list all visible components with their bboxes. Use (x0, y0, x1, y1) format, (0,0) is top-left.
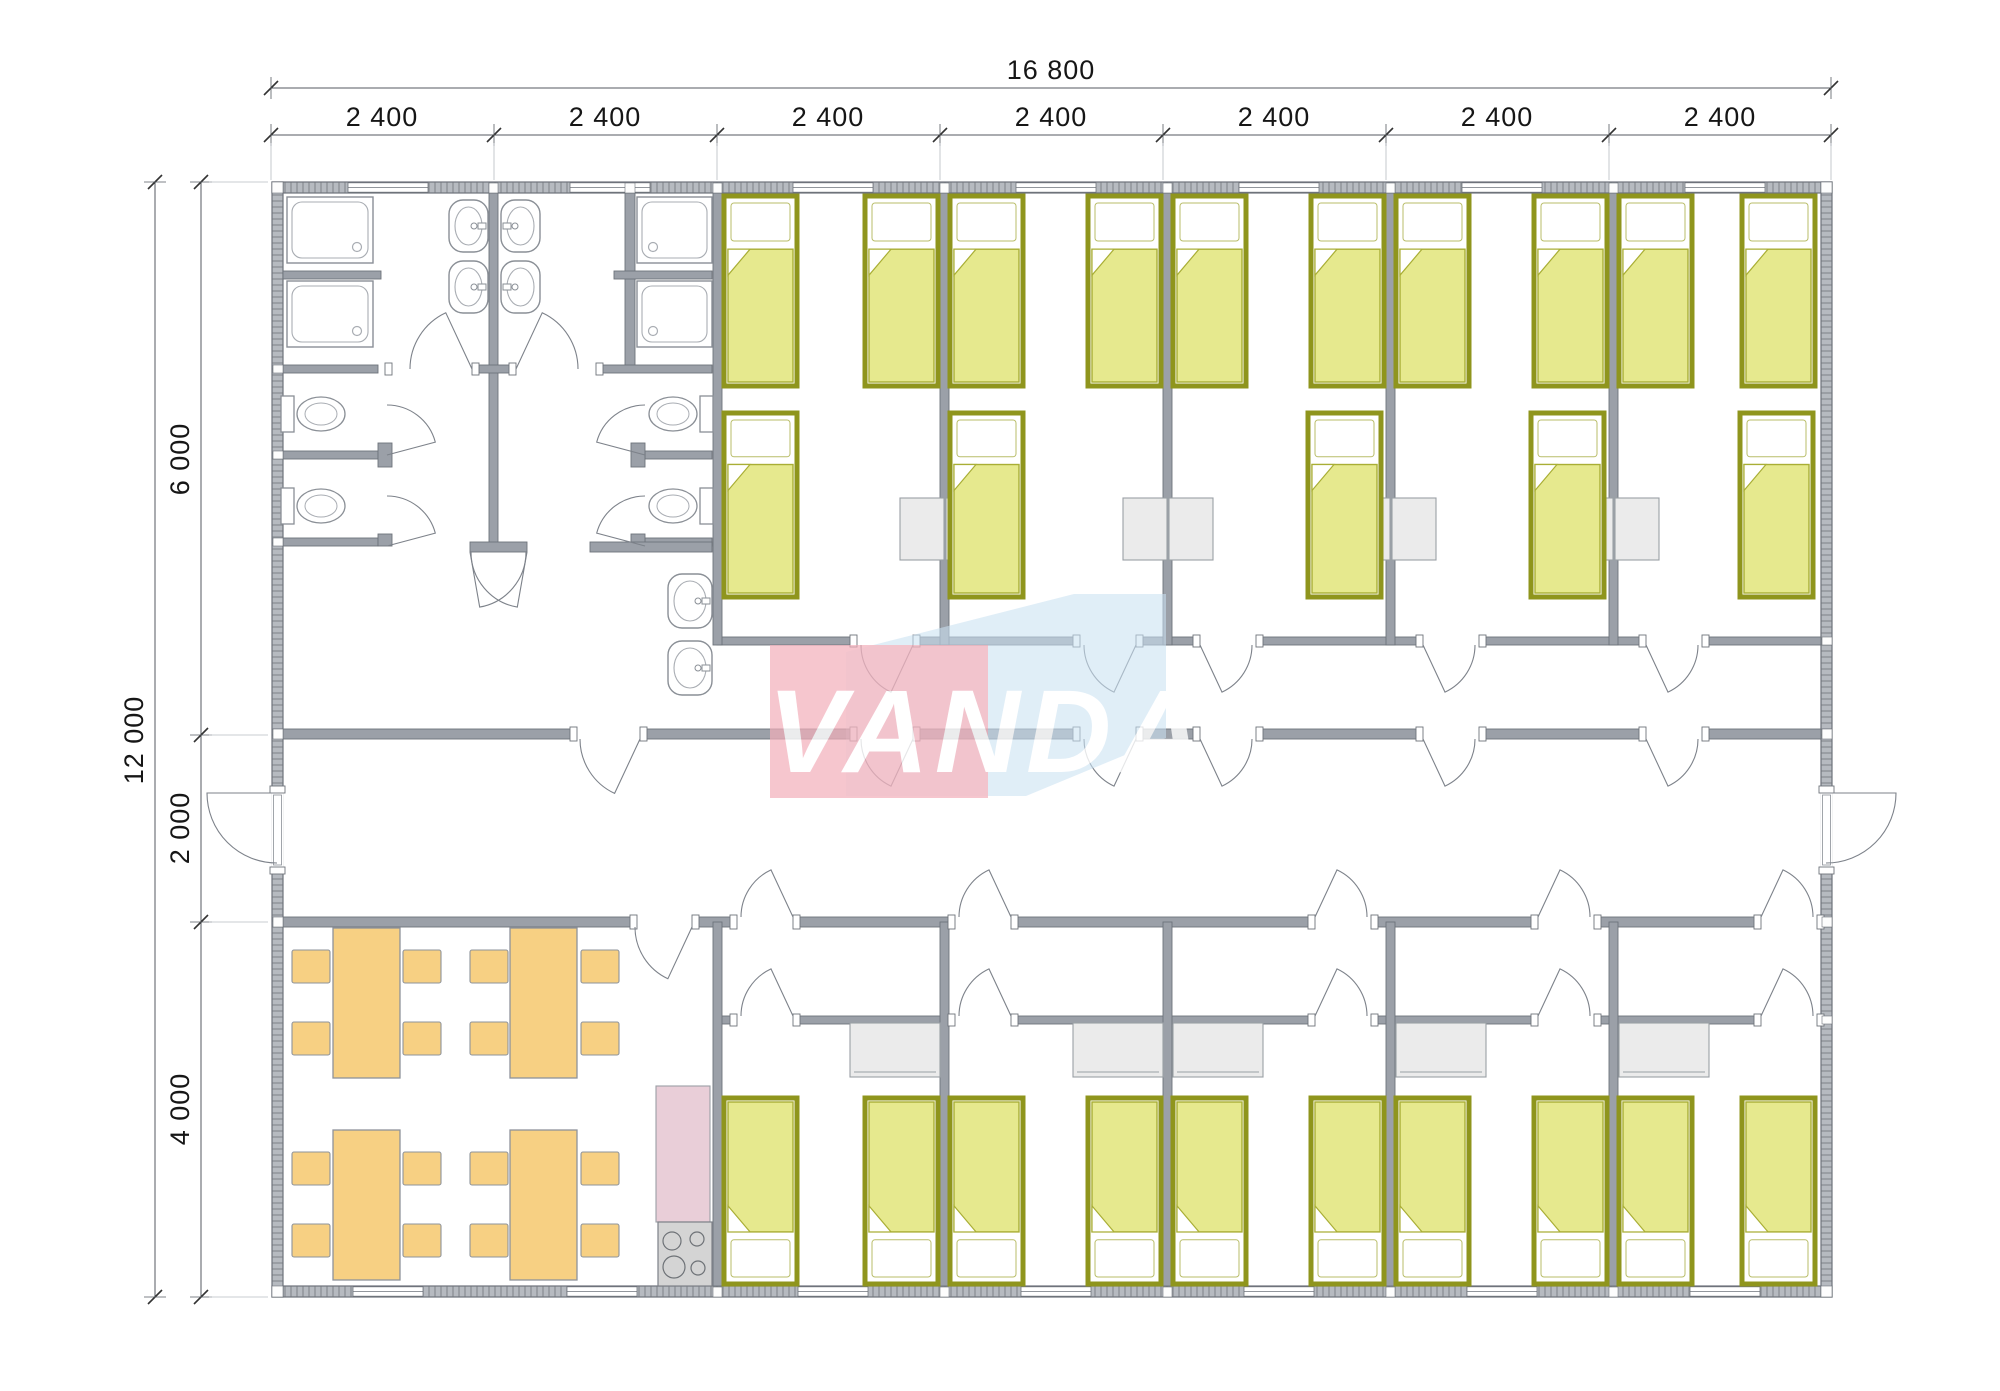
bed-blanket (1623, 249, 1688, 382)
wall-joint-cap (1386, 1287, 1395, 1297)
nightstand (900, 498, 944, 560)
door-swing (207, 793, 277, 863)
door-opening (737, 916, 793, 927)
opening-cap (1819, 786, 1834, 793)
sink-tap-icon (702, 598, 710, 604)
dining-chair (403, 1022, 441, 1055)
toilet-tank (700, 396, 713, 432)
interior-wall (596, 365, 712, 373)
interior-wall (283, 271, 381, 279)
opening-cap (1416, 727, 1423, 741)
exterior-door-leaf (1823, 795, 1831, 865)
wardrobe (1173, 1023, 1263, 1077)
wardrobe (1073, 1023, 1163, 1077)
opening-cap (1371, 1014, 1378, 1026)
opening-cap (1308, 1014, 1315, 1026)
bed-blanket (1744, 465, 1809, 593)
wall-joint-cap (489, 183, 498, 193)
nightstand (1392, 498, 1436, 560)
bed-blanket (1400, 1102, 1465, 1232)
door-opening (1761, 1015, 1817, 1024)
opening-cap (1702, 727, 1709, 741)
toilet-tank (700, 488, 713, 524)
dining-chair (403, 1224, 441, 1257)
bed-blanket (1315, 249, 1380, 382)
opening-cap (1702, 635, 1709, 647)
door-swing (516, 313, 578, 369)
opening-cap (793, 1014, 800, 1026)
sink-tap-icon (702, 665, 710, 671)
floor-plan: VANDA 16 8002 4002 4002 4002 4002 4002 4… (0, 0, 2000, 1391)
opening-cap (1531, 1014, 1538, 1026)
bed-pillow (957, 1240, 1016, 1277)
bed-blanket (954, 249, 1019, 382)
opening-cap (948, 915, 955, 929)
wall-joint-cap (272, 182, 283, 193)
interior-wall (713, 193, 722, 645)
bed-blanket (1177, 249, 1242, 382)
bed-blanket (1092, 1102, 1157, 1232)
dimension-label: 2 400 (1238, 102, 1311, 132)
wall-joint-cap (1386, 183, 1395, 193)
opening-cap (1479, 727, 1486, 741)
wall-joint-cap (273, 729, 283, 739)
bed-blanket (869, 249, 934, 382)
bed-pillow (957, 420, 1016, 457)
opening-cap (1594, 915, 1601, 929)
bed-pillow (1403, 203, 1462, 241)
wall-joint-cap (1822, 637, 1832, 645)
opening-cap (1256, 727, 1263, 741)
sink-tap-icon (478, 284, 486, 290)
door-swing (387, 496, 435, 546)
door-swing (1538, 870, 1590, 917)
sink-tap-icon (478, 223, 486, 229)
door-opening (1646, 728, 1702, 739)
opening-cap (640, 727, 647, 741)
bed-blanket (1177, 1102, 1242, 1232)
bed-blanket (869, 1102, 934, 1232)
opening-cap (1308, 915, 1315, 929)
shower-tray (637, 281, 712, 347)
kitchen-counter (656, 1086, 710, 1222)
dimension-label: 2 400 (346, 102, 419, 132)
bed-pillow (1538, 420, 1597, 457)
sink-tap-icon (503, 223, 511, 229)
opening-cap (730, 1014, 737, 1026)
dining-table (510, 928, 577, 1078)
bed-pillow (872, 203, 931, 241)
opening-cap (1639, 635, 1646, 647)
wall-joint-cap (940, 183, 949, 193)
bed-pillow (872, 1240, 931, 1277)
bed-blanket (1538, 1102, 1603, 1232)
opening-cap (1416, 635, 1423, 647)
dining-chair (292, 1152, 330, 1185)
interior-wall (283, 365, 378, 373)
door-opening (1423, 636, 1479, 645)
door-swing (1538, 969, 1590, 1016)
opening-cap (1193, 635, 1200, 647)
nightstand (1615, 498, 1659, 560)
bed-blanket (1315, 1102, 1380, 1232)
door-opening (1315, 916, 1371, 927)
opening-cap (270, 786, 285, 793)
toilet-tank (281, 396, 294, 432)
opening-cap (1754, 1014, 1761, 1026)
wardrobe (850, 1023, 940, 1077)
door-swing (1423, 739, 1475, 786)
wall-joint-cap (713, 183, 722, 193)
bed-pillow (1626, 203, 1685, 241)
dining-chair (581, 1152, 619, 1185)
wall-joint-cap (713, 1287, 722, 1297)
bed-pillow (1095, 1240, 1154, 1277)
door-swing (1761, 969, 1813, 1016)
dimension-label: 2 400 (1015, 102, 1088, 132)
door-swing (741, 969, 793, 1016)
dining-chair (403, 1152, 441, 1185)
opening-cap (1011, 1014, 1018, 1026)
door-opening (1200, 636, 1256, 645)
bed-blanket (1538, 249, 1603, 382)
wardrobe (1396, 1023, 1486, 1077)
interior-wall (614, 271, 712, 279)
door-swing (1826, 793, 1896, 863)
wall-joint-cap (273, 365, 283, 373)
opening-cap (1256, 635, 1263, 647)
door-opening (577, 728, 640, 739)
dimension-label: 2 400 (569, 102, 642, 132)
opening-cap (385, 363, 392, 375)
exterior-wall (1821, 182, 1832, 1297)
dining-chair (403, 950, 441, 983)
door-swing (410, 313, 472, 369)
wall-joint-cap (625, 183, 635, 193)
dining-chair (581, 950, 619, 983)
opening-cap (1594, 1014, 1601, 1026)
opening-cap (1011, 915, 1018, 929)
wall-joint-cap (273, 538, 283, 546)
opening-cap (730, 915, 737, 929)
door-opening (1538, 1015, 1594, 1024)
bed-blanket (1312, 465, 1377, 593)
interior-wall (378, 534, 392, 546)
floor-plan-page: VANDA 16 8002 4002 4002 4002 4002 4002 4… (0, 0, 2000, 1391)
wall-joint-cap (1821, 1286, 1832, 1297)
door-opening (1761, 916, 1817, 927)
opening-cap (1754, 915, 1761, 929)
dining-chair (470, 1224, 508, 1257)
bed-blanket (954, 1102, 1019, 1232)
bed-blanket (728, 465, 793, 593)
opening-cap (1819, 867, 1834, 874)
door-swing (580, 739, 640, 793)
opening-cap (1531, 915, 1538, 929)
bed-pillow (1318, 203, 1377, 241)
opening-cap (630, 915, 637, 929)
bed-pillow (1749, 203, 1808, 241)
dimension-label: 2 400 (1684, 102, 1757, 132)
bed-pillow (1541, 203, 1600, 241)
door-opening (1315, 1015, 1371, 1024)
nightstand (1169, 498, 1213, 560)
wall-joint-cap (940, 1287, 949, 1297)
door-swing (741, 870, 793, 917)
door-swing (1315, 969, 1367, 1016)
dining-chair (470, 1152, 508, 1185)
opening-cap (1639, 727, 1646, 741)
bed-pillow (1747, 420, 1806, 457)
toilet-bowl (649, 397, 697, 431)
door-swing (635, 927, 692, 979)
bed-blanket (1746, 1102, 1811, 1232)
opening-cap (472, 363, 479, 375)
wall-joint-cap (1822, 729, 1832, 739)
interior-wall (378, 443, 392, 467)
bed-pillow (1318, 1240, 1377, 1277)
bed-pillow (1749, 1240, 1808, 1277)
dimension-label: 2 400 (792, 102, 865, 132)
dining-chair (470, 1022, 508, 1055)
bed-pillow (731, 420, 790, 457)
interior-wall (590, 542, 712, 552)
door-opening (516, 364, 596, 373)
dimension-label: 2 400 (1461, 102, 1534, 132)
interior-wall (283, 538, 378, 546)
toilet-bowl (297, 397, 345, 431)
bed-blanket (1623, 1102, 1688, 1232)
wall-joint-cap (1609, 1287, 1618, 1297)
dimension-label: 12 000 (119, 696, 149, 785)
door-swing (1761, 870, 1813, 917)
dining-chair (292, 950, 330, 983)
bed-pillow (731, 1240, 790, 1277)
door-opening (1538, 916, 1594, 927)
toilet-bowl (297, 489, 345, 523)
dining-table (510, 1130, 577, 1280)
shower-tray (637, 197, 712, 263)
opening-cap (948, 1014, 955, 1026)
opening-cap (793, 915, 800, 929)
wall-joint-cap (1163, 183, 1172, 193)
wall-joint-cap (272, 1286, 283, 1297)
bed-blanket (1535, 465, 1600, 593)
wall-joint-cap (273, 451, 283, 459)
opening-cap (692, 915, 699, 929)
stove (658, 1222, 712, 1286)
bed-blanket (728, 249, 793, 382)
dining-chair (470, 950, 508, 983)
bed-pillow (1626, 1240, 1685, 1277)
door-opening (637, 916, 692, 927)
interior-wall (625, 193, 635, 369)
bed-blanket (954, 465, 1019, 593)
bed-pillow (1315, 420, 1374, 457)
dimension-label: 2 000 (165, 792, 195, 865)
interior-wall (713, 922, 722, 1286)
dimension-label: 6 000 (165, 423, 195, 496)
door-swing (1315, 870, 1367, 917)
opening-cap (270, 867, 285, 874)
opening-cap (596, 363, 603, 375)
door-opening (955, 916, 1011, 927)
shower-tray (287, 197, 373, 263)
opening-cap (509, 363, 516, 375)
bed-pillow (957, 203, 1016, 241)
door-swing (959, 969, 1011, 1016)
door-swing (1646, 645, 1698, 692)
wardrobe (1619, 1023, 1709, 1077)
door-swing (1423, 645, 1475, 692)
door-opening (955, 1015, 1011, 1024)
watermark-text: VANDA (768, 666, 1209, 798)
door-swing (1646, 739, 1698, 786)
dining-table (333, 1130, 400, 1280)
nightstand (1123, 498, 1167, 560)
dining-table (333, 928, 400, 1078)
watermark: VANDA (768, 594, 1209, 798)
wall-joint-cap (1822, 917, 1832, 927)
bed-pillow (1180, 1240, 1239, 1277)
interior-wall (283, 451, 378, 459)
wall-joint-cap (273, 917, 283, 927)
bed-blanket (728, 1102, 793, 1232)
opening-cap (1479, 635, 1486, 647)
bed-pillow (1403, 1240, 1462, 1277)
door-swing (959, 870, 1011, 917)
bed-blanket (1092, 249, 1157, 382)
opening-cap (570, 727, 577, 741)
door-opening (1423, 728, 1479, 739)
bed-pillow (1095, 203, 1154, 241)
exterior-wall (272, 182, 283, 1297)
door-opening (1646, 636, 1702, 645)
sink-tap-icon (503, 284, 511, 290)
interior-wall (470, 542, 527, 552)
wall-joint-cap (1822, 1016, 1832, 1024)
dimension-label: 16 800 (1007, 55, 1096, 85)
bed-blanket (1400, 249, 1465, 382)
wall-joint-cap (1821, 182, 1832, 193)
dining-chair (292, 1224, 330, 1257)
dining-chair (292, 1022, 330, 1055)
door-opening (737, 1015, 793, 1024)
dining-chair (581, 1022, 619, 1055)
dimension-label: 4 000 (165, 1073, 195, 1146)
bed-blanket (1746, 249, 1811, 382)
exterior-door-leaf (274, 795, 282, 865)
door-swing (387, 405, 435, 455)
interior-wall (645, 451, 712, 459)
opening-cap (1371, 915, 1378, 929)
bed-pillow (1180, 203, 1239, 241)
bed-pillow (731, 203, 790, 241)
wall-joint-cap (1163, 1287, 1172, 1297)
bed-pillow (1541, 1240, 1600, 1277)
wall-joint-cap (1609, 183, 1618, 193)
shower-tray (287, 281, 373, 347)
dining-chair (581, 1224, 619, 1257)
toilet-tank (281, 488, 294, 524)
door-opening (392, 364, 472, 373)
toilet-bowl (649, 489, 697, 523)
